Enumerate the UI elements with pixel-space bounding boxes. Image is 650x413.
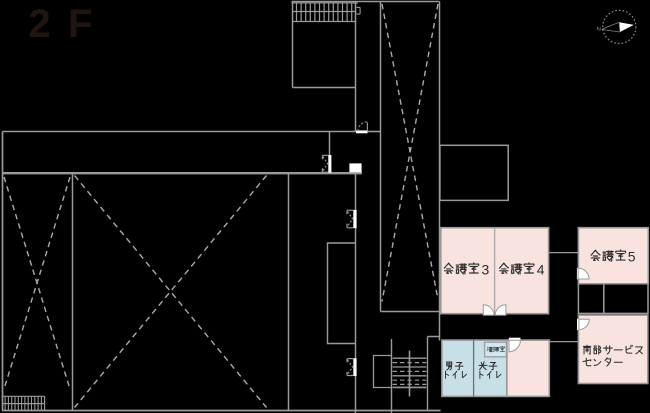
- svg-text:3: 3: [482, 261, 490, 277]
- svg-text:F: F: [68, 2, 92, 46]
- svg-text:5: 5: [628, 248, 636, 264]
- svg-text:2: 2: [29, 2, 51, 46]
- svg-text:4: 4: [537, 261, 545, 277]
